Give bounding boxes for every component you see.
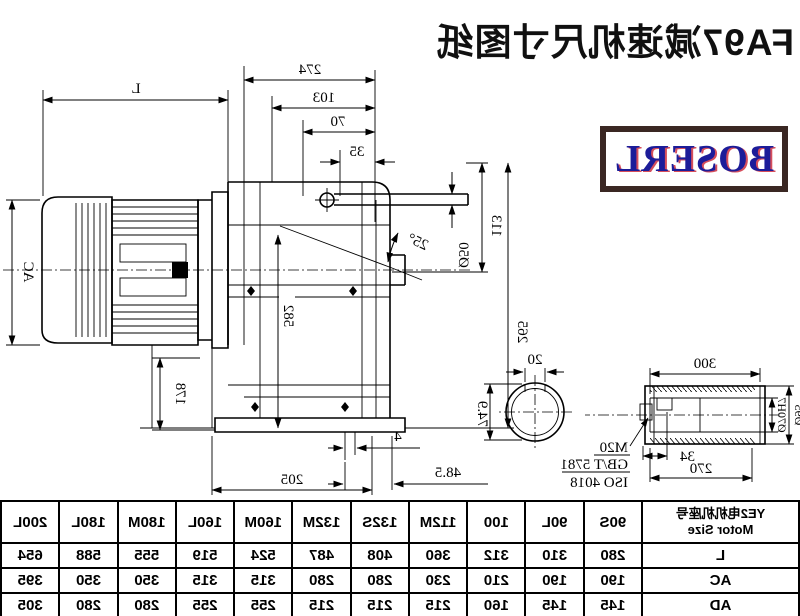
dim-178-label: 178 (172, 383, 188, 406)
motor-size-header: YE2电机机座号 Motor Size (642, 501, 799, 543)
note-m20: M20 (600, 440, 628, 456)
hollow-shaft-detail: 300 270 34 M20 GB/T 5781 ISO 4018 Ø70H7 (560, 356, 800, 491)
col-180M: 180M (118, 501, 176, 543)
dimension-table: YE2电机机座号 Motor Size 90S 90L 100 112M 132… (0, 500, 800, 616)
col-112M: 112M (409, 501, 467, 543)
dim-dia95-label: Ø95 (792, 405, 800, 426)
cell-L-132S: 408 (351, 543, 409, 568)
dim-dia70H7-label: Ø70H7 (775, 397, 789, 432)
row-label-AD: AD (642, 593, 799, 616)
cell-L-200L: 654 (1, 543, 59, 568)
note-gbt5781: GB/T 5781 (560, 457, 628, 473)
dim-25deg-label: 25° (405, 231, 431, 254)
cell-AC-160M: 315 (234, 568, 292, 593)
dim-274-label: 274 (298, 62, 321, 78)
cell-AC-90L: 190 (525, 568, 583, 593)
col-132M: 132M (292, 501, 350, 543)
main-view: 274 103 70 35 L AC 582 (2, 62, 530, 495)
motor-size-header-en: Motor Size (643, 522, 798, 538)
dim-34-label: 34 (680, 449, 696, 465)
col-160M: 160M (234, 501, 292, 543)
cell-AD-180M: 280 (118, 593, 176, 616)
motor-terminal-block (172, 262, 188, 278)
row-label-AC: AC (642, 568, 799, 593)
cell-AD-160L: 255 (176, 593, 234, 616)
dimension-lines: 274 103 70 35 L AC 582 (6, 62, 530, 495)
row-label-L: L (642, 543, 799, 568)
cell-L-180M: 555 (118, 543, 176, 568)
cell-L-160M: 524 (234, 543, 292, 568)
flange-chamfer-line (280, 226, 392, 268)
shaft-section-detail: 20 74.9 (474, 352, 572, 449)
cell-AD-132M: 215 (292, 593, 350, 616)
table-row-AD: AD 145 145 160 215 215 215 255 255 280 2… (1, 593, 799, 616)
dim-205-label: 205 (281, 472, 304, 488)
cell-AC-90S: 190 (584, 568, 642, 593)
table-row-AC: AC 190 190 210 230 280 280 315 315 350 3… (1, 568, 799, 593)
col-90S: 90S (584, 501, 642, 543)
gear-housing (215, 182, 405, 432)
dim-103-label: 103 (313, 90, 336, 106)
cell-L-180L: 588 (59, 543, 117, 568)
cell-L-90S: 280 (584, 543, 642, 568)
cell-AD-90S: 145 (584, 593, 642, 616)
cell-AC-132S: 280 (351, 568, 409, 593)
torque-arm (315, 188, 468, 212)
col-160L: 160L (176, 501, 234, 543)
col-180L: 180L (59, 501, 117, 543)
dim-L-label: L (131, 81, 140, 97)
cell-AD-132S: 215 (351, 593, 409, 616)
cell-AC-100: 210 (467, 568, 525, 593)
bolt-diamond (247, 286, 255, 296)
bolt-diamond (349, 286, 357, 296)
col-100: 100 (467, 501, 525, 543)
cell-AD-100: 160 (467, 593, 525, 616)
drawing-sheet: FA97减速机尺寸图纸 BOSERL (0, 0, 800, 616)
cell-AC-180M: 350 (118, 568, 176, 593)
col-132S: 132S (351, 501, 409, 543)
cell-AC-180L: 350 (59, 568, 117, 593)
dim-265-label: 265 (514, 321, 530, 344)
cell-AD-180L: 280 (59, 593, 117, 616)
dim-74p9-label: 74.9 (474, 401, 490, 427)
cell-L-160L: 519 (176, 543, 234, 568)
cell-AD-200L: 305 (1, 593, 59, 616)
dim-300-label: 300 (694, 356, 717, 372)
cell-L-132M: 487 (292, 543, 350, 568)
cell-AC-160L: 315 (176, 568, 234, 593)
cell-L-100: 312 (467, 543, 525, 568)
thread-note: M20 GB/T 5781 ISO 4018 (560, 418, 648, 491)
cell-AC-112M: 230 (409, 568, 467, 593)
cell-L-112M: 360 (409, 543, 467, 568)
table-header-row: YE2电机机座号 Motor Size 90S 90L 100 112M 132… (1, 501, 799, 543)
col-200L: 200L (1, 501, 59, 543)
cell-AC-200L: 395 (1, 568, 59, 593)
cell-AC-132M: 280 (292, 568, 350, 593)
dim-20-label: 20 (528, 352, 543, 368)
dim-4-label: 4 (394, 429, 402, 445)
motor (42, 192, 228, 428)
dim-48p5-label: 48.5 (435, 465, 461, 481)
note-iso4018: ISO 4018 (570, 475, 628, 491)
col-90L: 90L (525, 501, 583, 543)
mirrored-content: FA97减速机尺寸图纸 BOSERL (0, 0, 800, 616)
cell-L-90L: 310 (525, 543, 583, 568)
dim-AC-label: AC (20, 262, 36, 283)
cell-AD-160M: 255 (234, 593, 292, 616)
dim-113-label: 113 (488, 215, 504, 237)
dim-35-label: 35 (350, 144, 365, 160)
dim-582-label: 582 (280, 305, 296, 328)
dim-70-label: 70 (331, 114, 346, 130)
key (657, 398, 672, 410)
cell-AD-112M: 215 (409, 593, 467, 616)
dim-dia50-label: Ø50 (455, 242, 471, 268)
bolt-diamond (251, 402, 259, 412)
motor-size-header-cn: YE2电机机座号 (643, 506, 798, 522)
cell-AD-90L: 145 (525, 593, 583, 616)
table-row-L: L 280 310 312 360 408 487 524 519 555 58… (1, 543, 799, 568)
dimension-drawing: 274 103 70 35 L AC 582 (0, 0, 800, 500)
bolt-diamond (341, 402, 349, 412)
